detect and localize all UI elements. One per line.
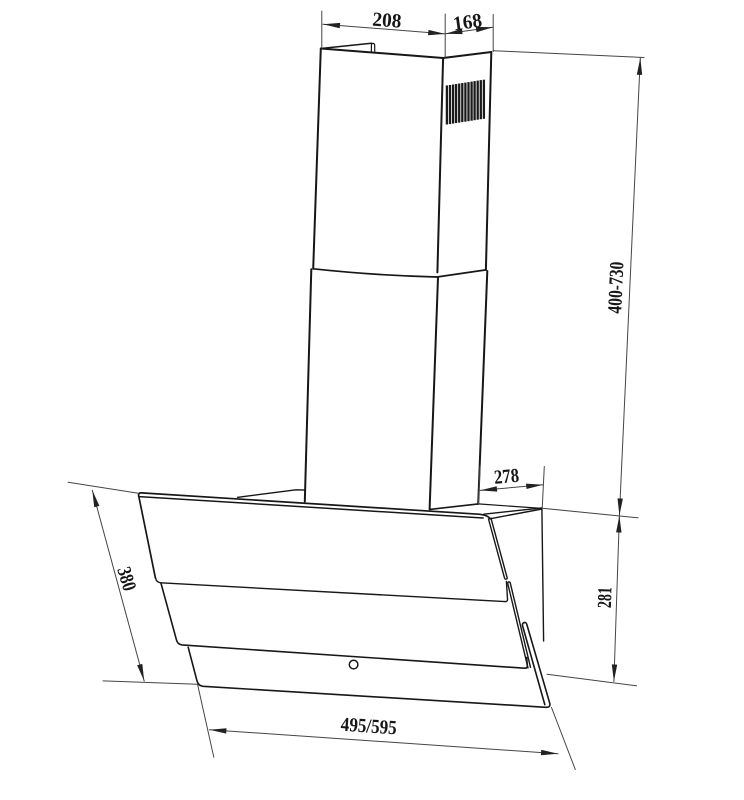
svg-text:495/595: 495/595 — [340, 714, 397, 740]
svg-text:400-730: 400-730 — [604, 261, 628, 314]
svg-text:278: 278 — [493, 465, 520, 489]
svg-text:281: 281 — [594, 587, 617, 609]
svg-text:168: 168 — [452, 10, 484, 36]
svg-text:208: 208 — [372, 9, 403, 33]
